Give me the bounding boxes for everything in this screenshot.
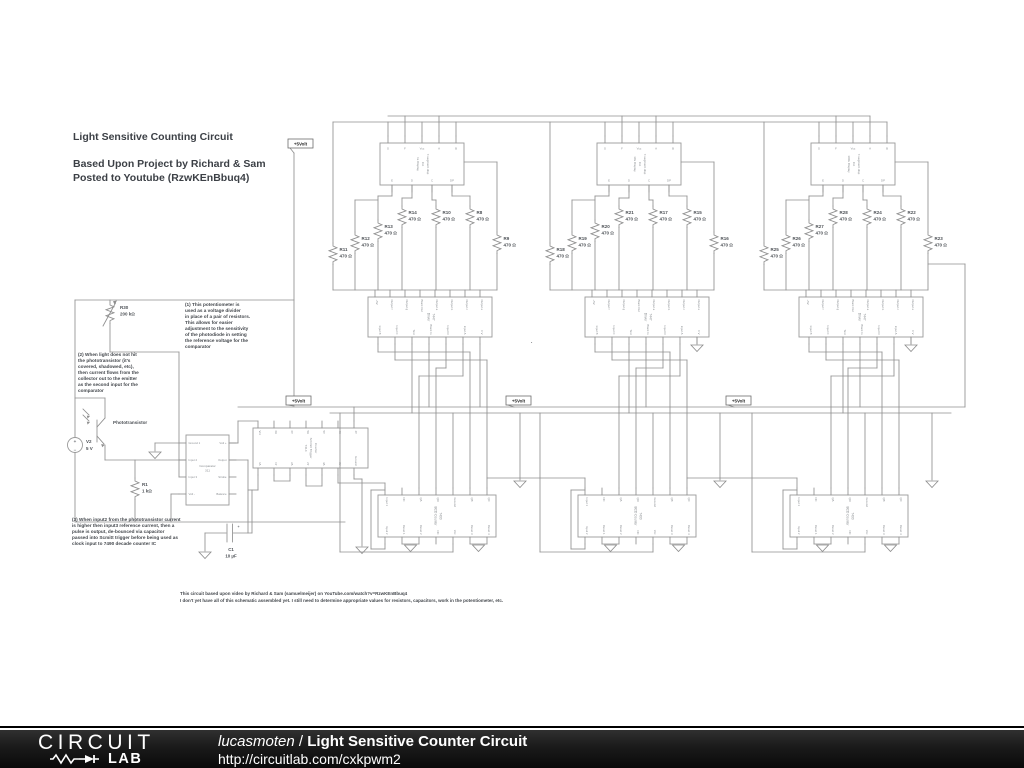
text-label: B [455,147,457,151]
text-label: Output a [652,300,656,311]
text-label: Input A [463,326,467,335]
text-label: Reset 4 [899,525,903,535]
text-label: B [672,147,674,151]
footer-author: lucasmoten [218,733,295,750]
resistor-symbol [683,206,691,228]
text-label: Output g [836,300,840,311]
text-label: +5Volt [512,399,526,404]
resistor-symbol [131,478,139,500]
text-label: Blank In [429,324,433,335]
text-label: Input D [663,325,667,334]
resistor-symbol [568,232,576,254]
text-label: QC [687,498,691,502]
text-label: 470 Ω [602,231,615,236]
text-label: 470 Ω [721,243,734,248]
text-label: 1Y [274,462,278,466]
text-label: Input 3 [189,475,198,479]
text-label: 470 Ω [874,217,887,222]
text-label: Reset 3 [882,525,886,535]
text-label: 5A [306,431,310,435]
text-label: R21 [626,210,635,215]
text-label: +5Volt [292,399,306,404]
text-label: 470 Ω [579,243,592,248]
ground-icon [673,545,685,552]
text-label: R11 [340,247,349,252]
text-label: F [835,147,837,151]
arrowhead [87,416,90,419]
text-label: QB [882,498,886,502]
text-label: Reset 3 [470,525,474,535]
arrowhead [87,422,90,425]
text-label: 5Y [322,431,326,435]
text-label: +5V [375,300,379,305]
text-label: 6Y [290,431,294,435]
text-label: 0 V [480,330,484,334]
text-label: Output e [911,300,915,311]
text-label: 470 Ω [771,254,784,259]
text-label: 470 Ω [362,243,375,248]
text-label: R26 [793,236,802,241]
text-label: Output a [866,300,870,311]
text-label: − [74,448,77,453]
text-label: +5Volt [294,142,308,147]
text-label: 2A [290,462,294,466]
text-label: Output f [607,300,611,310]
text-label: 470 Ω [504,243,517,248]
ground-icon [405,545,417,552]
text-label: 470 Ω [477,217,490,222]
ground-icon [926,481,938,488]
annotation-2: (2) When light does not hit the phototra… [78,352,198,394]
resistor-symbol [760,243,768,265]
text-label: Output b [450,300,454,311]
text-label: 6A [274,431,278,435]
text-label: Reset 4 [687,525,691,535]
text-label: 470 Ω [908,217,921,222]
text-label: C [862,179,864,183]
text-label: Output c [896,300,900,311]
resistor-symbol [432,206,440,228]
ground-icon [605,545,617,552]
text-label: 470 Ω [385,231,398,236]
resistor-symbol [374,220,382,242]
text-label: Output [218,458,227,462]
text-label: Blank In [646,324,650,335]
footer-url[interactable]: http://circuitlab.com/cxkpwm2 [218,751,527,767]
text-label: 7447 [432,313,436,320]
text-label: R1 [142,482,148,487]
text-label: 7-segment disp [857,154,861,175]
text-label: Blank Out [637,300,641,313]
text-label: R24 [874,210,883,215]
text-label: 470 Ω [557,254,570,259]
text-label: E [391,179,393,183]
text-label: R8 [477,210,483,215]
annotation-1: (1) This potentiometer is used as a volt… [185,302,305,350]
text-label: NC [402,498,406,502]
resistor-symbol [863,206,871,228]
text-label: Output f [821,300,825,310]
text-label: Vcc [258,431,262,436]
ground-icon [885,545,897,552]
resistor-symbol [897,206,905,228]
footer-circuit-name: lucasmoten / Light Sensitive Counter Cir… [218,733,527,750]
text-label: QC [487,498,491,502]
text-label: 470 Ω [816,231,829,236]
text-label: R19 [579,236,588,241]
text-label: 7490 [439,512,443,519]
text-label: 311 [205,469,210,473]
text-label: Blank In [860,324,864,335]
text-label: Comparator [199,464,215,468]
text-label: A [869,147,871,151]
text-label: Vcc [851,147,856,151]
schematic-footnote: This circuit based upon video by Richard… [180,591,503,605]
text-label: 4Y [354,431,358,435]
text-label: Vcc [453,530,457,535]
text-label: Test [843,329,847,334]
text-label: CA [421,162,425,166]
text-label: 1 kΩ [142,489,152,494]
text-label: 7414 [304,445,308,452]
text-label: Ground [453,498,457,508]
text-label: R17 [660,210,669,215]
text-label: CA [852,162,856,166]
text-label: Input 2 [797,526,801,535]
text-label: Input B [809,326,813,335]
text-label: Test [629,329,633,334]
annotation-3: (3) When input2 from the phototransistor… [72,517,302,547]
footer-divider [0,726,1024,728]
schematic-title: Light Sensitive Counting Circuit [73,131,233,143]
text-label: R23 [935,236,944,241]
text-label: R25 [771,247,780,252]
text-label: DP [881,179,885,183]
text-label: Reset 2 [831,525,835,535]
text-label: 470 Ω [793,243,806,248]
text-label: Schmitt Trigger [309,438,313,459]
text-label: Blank Out [420,300,424,313]
text-label: Output e [480,300,484,311]
ground-icon [714,481,726,488]
text-label: D [628,179,630,183]
text-label: R9 [504,236,510,241]
text-label: QA [831,498,835,502]
text-label: Output f [390,300,394,310]
ground-icon [905,345,917,352]
text-label: R10 [443,210,452,215]
arrowhead [101,444,105,447]
text-label: Input B [595,326,599,335]
text-label: 10 µF [225,554,237,559]
resistor-symbol [710,232,718,254]
text-label: Output g [405,300,409,311]
text-label: 2Y [306,462,310,466]
wire [103,303,116,326]
text-label: Input D [446,325,450,334]
resistor-symbol [615,206,623,228]
text-label: Output c [682,300,686,311]
text-label: Reset 2 [419,525,423,535]
ground-icon [356,547,368,554]
text-label: R14 [409,210,418,215]
text-label: 470 Ω [694,217,707,222]
text-label: C [431,179,433,183]
text-label: Reset 1 [814,525,818,535]
text-label: Output a [435,300,439,311]
wire [97,436,104,444]
text-label: Blank Out [851,300,855,313]
resistor-symbol [782,232,790,254]
text-label: R30 [120,305,129,310]
text-label: Driver [427,313,431,322]
resistor-symbol [805,220,813,242]
text-label: Input A [894,326,898,335]
text-label: 3A [322,462,326,466]
text-label: Reset 1 [602,525,606,535]
text-label: R22 [908,210,917,215]
text-label: R18 [557,247,566,252]
text-label: 470 Ω [443,217,456,222]
text-label: 1s Display [416,157,420,171]
text-label: 1A [258,462,262,466]
resistor-symbol [398,206,406,228]
ground-icon [149,452,161,459]
text-label: QC [899,498,903,502]
text-label: Balance [216,492,227,496]
text-label: C [648,179,650,183]
resistor-symbol [649,206,657,228]
resistor-symbol [329,243,337,265]
text-label: 0 V [911,330,915,334]
text-label: 200 kΩ [120,312,135,317]
text-label: Input B [378,326,382,335]
text-label: B [886,147,888,151]
text-label: Ground [354,456,358,466]
text-label: D [842,179,844,183]
text-label: 470 Ω [626,217,639,222]
text-label: Input C [826,325,830,334]
schematic-subtitle: Based Upon Project by Richard & Sam Post… [73,157,266,185]
ground-icon [691,345,703,352]
text-label: R16 [721,236,730,241]
text-label: Output b [667,300,671,311]
text-label: Ground [865,498,869,508]
text-label: Strobe [218,475,227,479]
text-label: Input C [612,325,616,334]
text-label: E [822,179,824,183]
text-label: Volt - [189,492,195,496]
resistor-symbol [493,232,501,254]
text-label: Driver [858,313,862,322]
text-label: R13 [385,224,394,229]
resistor-symbol [351,232,359,254]
wire [83,409,89,415]
text-label: DP [667,179,671,183]
text-label: R20 [602,224,611,229]
text-label: Reset 2 [619,525,623,535]
text-label: Reset 4 [487,525,491,535]
text-label: BCD Counter [434,507,438,527]
text-label: E [608,179,610,183]
text-label: +5Volt [732,399,746,404]
text-label: NC [436,530,440,534]
text-label: Output c [465,300,469,311]
text-label: Vcc [865,530,869,535]
text-label: NC [636,530,640,534]
text-label: QD [636,498,640,502]
resistor-symbol [924,232,932,254]
text-label: R27 [816,224,825,229]
text-label: + [74,439,77,444]
text-label: Phototransistor [113,420,147,425]
text-label: F [621,147,623,151]
text-label: Input 2 [189,458,198,462]
text-label: Input 1 [385,498,389,507]
text-label: . [531,339,533,345]
text-label: A [655,147,657,151]
text-label: Input 2 [385,526,389,535]
circuitlab-logo: CIRCUIT LAB [38,731,155,767]
text-label: D [411,179,413,183]
text-label: QD [848,498,852,502]
text-label: G [818,147,820,151]
resistor-symbol [466,206,474,228]
text-label: +5V [592,300,596,305]
text-label: Input 1 [797,498,801,507]
text-label: Input C [395,325,399,334]
text-label: Test [412,329,416,334]
text-label: Volt + [219,441,226,445]
footer-bar: CIRCUIT LAB lucasmoten / Light Sensitive… [0,730,1024,768]
text-label: QA [619,498,623,502]
text-label: C1 [228,547,234,552]
text-label: Ground [653,498,657,508]
text-label: Input 2 [585,526,589,535]
ground-icon [199,552,211,559]
text-label: 5 V [86,446,93,451]
logo-lab-text: LAB [108,751,142,767]
text-label: Vcc [653,530,657,535]
text-label: 470 Ω [409,217,422,222]
text-label: 100s Display [847,155,851,173]
text-label: Output b [881,300,885,311]
text-label: 470 Ω [660,217,673,222]
wire [97,418,105,427]
resistor-symbol [546,243,554,265]
text-label: 470 Ω [840,217,853,222]
text-label: 7-segment disp [643,154,647,175]
text-label: QB [470,498,474,502]
text-label: 7490 [851,512,855,519]
text-label: NC [602,498,606,502]
text-label: R15 [694,210,703,215]
text-label: Input 1 [585,498,589,507]
text-label: BCD Counter [846,507,850,527]
text-label: 7-segment disp [426,154,430,175]
text-label: F [404,147,406,151]
text-label: Reset 3 [670,525,674,535]
circuitlab-schematic-page: +5Volt+5Volt+5Volt+5VoltR30200 kΩPhototr… [0,0,1024,768]
text-label: DP [450,179,454,183]
text-label: 0 V [697,330,701,334]
footer-title: Light Sensitive Counter Circuit [307,733,527,750]
text-label: 10s Display [633,156,637,172]
text-label: +5V [806,300,810,305]
text-label: R12 [362,236,371,241]
text-label: Vcc [420,147,425,151]
text-label: Inverter [314,443,318,454]
text-label: Vcc [637,147,642,151]
text-label: V2 [86,439,92,444]
resistor-diode-icon [50,753,108,765]
wire [290,148,294,153]
text-label: CA [638,162,642,166]
text-label: Input A [680,326,684,335]
text-label: NC [848,530,852,534]
text-label: 7447 [649,313,653,320]
text-label: QB [670,498,674,502]
text-label: A [438,147,440,151]
resistor-symbol [591,220,599,242]
resistor-symbol [829,206,837,228]
text-label: Input D [877,325,881,334]
text-label: 470 Ω [340,254,353,259]
ground-icon [473,545,485,552]
text-label: Output g [622,300,626,311]
footer-separator: / [295,733,308,750]
text-label: BCD Counter [634,507,638,527]
text-label: QD [436,498,440,502]
text-label: G [387,147,389,151]
text-label: QA [419,498,423,502]
text-label: Output e [697,300,701,311]
text-label: 7490 [639,512,643,519]
text-label: Ground 1 [189,441,201,445]
text-label: NC [814,498,818,502]
text-label: 470 Ω [935,243,948,248]
text-label: G [604,147,606,151]
text-label: Reset 1 [402,525,406,535]
text-label: Driver [644,313,648,322]
ground-icon [514,481,526,488]
text-label: R28 [840,210,849,215]
text-label: 7447 [863,313,867,320]
ground-icon [817,545,829,552]
